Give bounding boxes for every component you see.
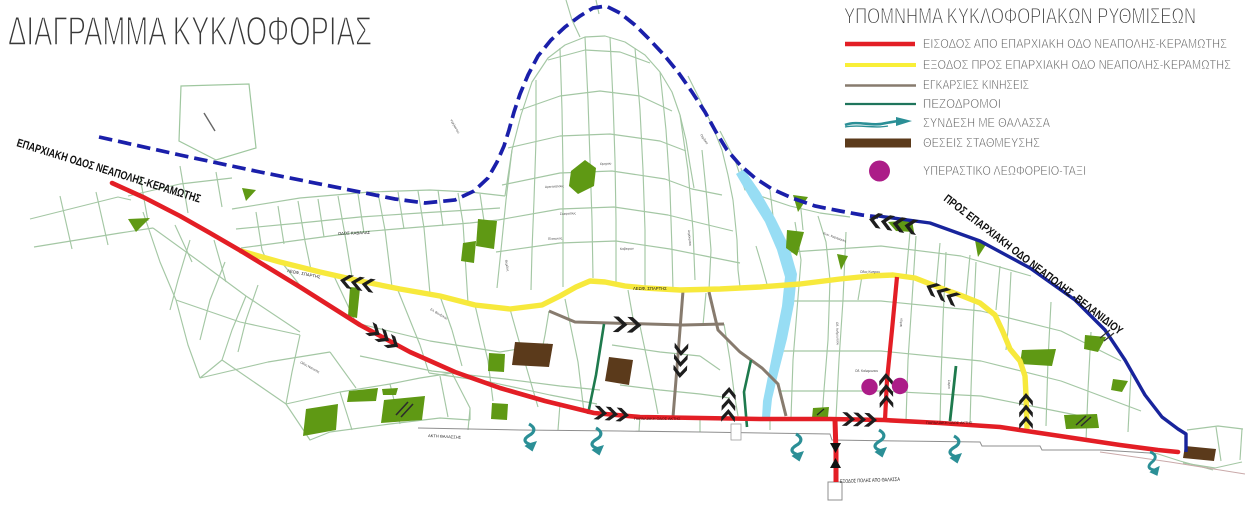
svg-text:Υδρας: Υδρας — [899, 318, 903, 328]
svg-text:ΕΙΣΟΔΟΣ ΑΠΟ ΕΠΑΡΧΙΑΚΗ ΟΔΟ ΝΕΑΠ: ΕΙΣΟΔΟΣ ΑΠΟ ΕΠΑΡΧΙΑΚΗ ΟΔΟ ΝΕΑΠΟΛΗΣ-ΚΕΡΑΜ… — [923, 37, 1227, 51]
svg-text:ΘΕΣΕΙΣ ΣΤΑΘΜΕΥΣΗΣ: ΘΕΣΕΙΣ ΣΤΑΘΜΕΥΣΗΣ — [923, 136, 1040, 150]
svg-text:ΕΓΚΑΡΣΙΕΣ ΚΙΝΗΣΕΙΣ: ΕΓΚΑΡΣΙΕΣ ΚΙΝΗΣΕΙΣ — [923, 78, 1029, 92]
svg-text:Οδ. Ανδρουτσου: Οδ. Ανδρουτσου — [835, 322, 840, 346]
svg-text:Σαμου: Σαμου — [947, 380, 951, 390]
svg-text:Ομηρου: Ομηρου — [600, 161, 612, 166]
svg-text:ΛΕΩΦ. ΣΠΑΡΤΗΣ: ΛΕΩΦ. ΣΠΑΡΤΗΣ — [633, 286, 667, 291]
svg-text:ΔΙΑΓΡΑΜΜΑ ΚΥΚΛΟΦΟΡΙΑΣ: ΔΙΑΓΡΑΜΜΑ ΚΥΚΛΟΦΟΡΙΑΣ — [8, 8, 372, 54]
svg-text:Καβειρων: Καβειρων — [620, 247, 634, 251]
svg-text:ΠΑΡΑΛΙΑΚΗ ΟΔΟΣ ΑΚΤΗΣ: ΠΑΡΑΛΙΑΚΗ ΟΔΟΣ ΑΚΤΗΣ — [634, 417, 681, 421]
svg-text:ΕΞΟΔΟΣ ΠΡΟΣ ΕΠΑΡΧΙΑΚΗ ΟΔΟ ΝΕΑΠ: ΕΞΟΔΟΣ ΠΡΟΣ ΕΠΑΡΧΙΑΚΗ ΟΔΟ ΝΕΑΠΟΛΗΣ-ΚΕΡΑΜ… — [923, 58, 1231, 72]
svg-text:Οδ. Καλαμιωτου: Οδ. Καλαμιωτου — [855, 369, 878, 373]
svg-text:ΠΕΖΟΔΡΟΜΟΙ: ΠΕΖΟΔΡΟΜΟΙ — [923, 97, 1001, 111]
svg-text:Πλατωνος: Πλατωνος — [548, 236, 563, 241]
svg-text:ΣΥΝΔΕΣΗ ΜΕ ΘΑΛΑΣΣΑ: ΣΥΝΔΕΣΗ ΜΕ ΘΑΛΑΣΣΑ — [923, 116, 1051, 130]
svg-text:Οδος Κυπρου: Οδος Κυπρου — [860, 270, 880, 274]
svg-text:ΥΠΕΡΑΣΤΙΚΟ ΛΕΩΦΟΡΕΙΟ-ΤΑΞΙ: ΥΠΕΡΑΣΤΙΚΟ ΛΕΩΦΟΡΕΙΟ-ΤΑΞΙ — [923, 164, 1086, 178]
svg-text:ΠΑΡΑΛΙΑΚΗ ΟΔΟΣ ΑΚΤΗΣ: ΠΑΡΑΛΙΑΚΗ ΟΔΟΣ ΑΚΤΗΣ — [926, 421, 973, 425]
svg-text:ΥΠΟΜΝΗΜΑ ΚΥΚΛΟΦΟΡΙΑΚΩΝ ΡΥΘΜΙΣΕ: ΥΠΟΜΝΗΜΑ ΚΥΚΛΟΦΟΡΙΑΚΩΝ ΡΥΘΜΙΣΕΩΝ — [844, 4, 1196, 29]
